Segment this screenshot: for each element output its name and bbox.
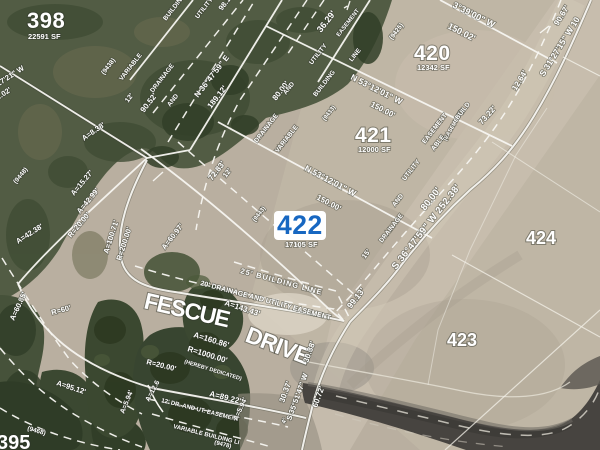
svg-text:423: 423 — [447, 330, 477, 350]
svg-text:424: 424 — [526, 228, 556, 248]
svg-text:22591 SF: 22591 SF — [28, 32, 61, 41]
svg-text:12000 SF: 12000 SF — [358, 145, 391, 154]
svg-text:421: 421 — [355, 124, 392, 147]
svg-text:12342 SF: 12342 SF — [417, 63, 450, 72]
svg-text:395: 395 — [0, 432, 30, 450]
svg-text:420: 420 — [414, 42, 451, 65]
svg-text:422: 422 — [277, 210, 323, 240]
svg-text:398: 398 — [27, 8, 65, 33]
svg-text:17105 SF: 17105 SF — [285, 240, 318, 249]
